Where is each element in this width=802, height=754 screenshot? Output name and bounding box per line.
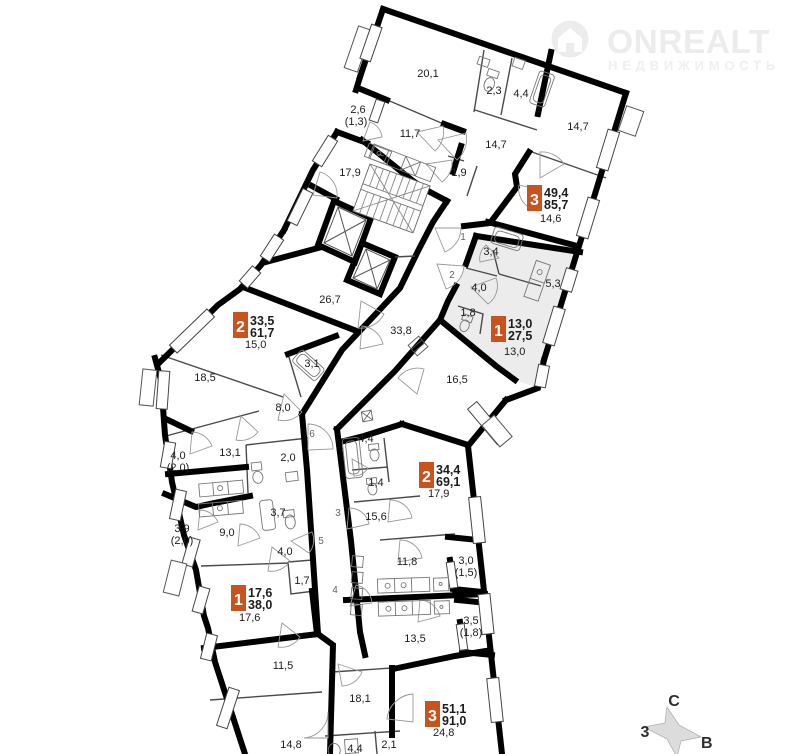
svg-text:4,0: 4,0 [471,282,486,294]
svg-text:13,0: 13,0 [504,346,525,358]
svg-text:3: 3 [335,508,341,519]
svg-text:3: 3 [428,708,437,725]
svg-text:11,5: 11,5 [273,660,294,672]
svg-text:4,4: 4,4 [513,88,528,100]
svg-text:2: 2 [236,319,245,336]
svg-text:(1,8): (1,8) [460,627,483,639]
svg-text:16,5: 16,5 [446,374,467,386]
svg-text:(1,3): (1,3) [345,116,368,128]
svg-text:14,8: 14,8 [280,739,301,751]
svg-text:НЕДВИЖИМОСТЬ: НЕДВИЖИМОСТЬ [608,58,780,73]
svg-text:17,9: 17,9 [428,488,449,500]
svg-text:ONREALT: ONREALT [607,24,770,61]
svg-text:26,7: 26,7 [319,294,340,306]
svg-text:17,6: 17,6 [239,612,260,624]
svg-text:4: 4 [332,585,338,596]
svg-text:4,4: 4,4 [358,433,373,445]
svg-text:33,8: 33,8 [390,325,411,337]
svg-text:2,0: 2,0 [280,452,295,464]
svg-text:27,5: 27,5 [508,329,532,343]
svg-text:1,9: 1,9 [451,167,466,179]
svg-text:1,8: 1,8 [460,307,475,319]
svg-text:2: 2 [422,469,431,486]
svg-text:2: 2 [449,270,455,281]
svg-text:4,4: 4,4 [347,743,362,754]
svg-text:69,1: 69,1 [436,475,460,489]
svg-text:91,0: 91,0 [442,714,466,728]
svg-text:5: 5 [318,536,324,547]
svg-text:61,7: 61,7 [250,326,274,340]
svg-text:14,6: 14,6 [540,213,561,225]
svg-text:С: С [668,693,680,710]
svg-text:(1,5): (1,5) [455,567,478,579]
svg-text:1,4: 1,4 [368,477,383,489]
svg-text:2,1: 2,1 [381,739,396,751]
svg-text:15,6: 15,6 [365,511,386,523]
svg-text:3,5: 3,5 [463,615,478,627]
svg-text:6: 6 [309,429,315,440]
svg-text:18,1: 18,1 [349,693,370,705]
svg-text:1: 1 [234,592,243,609]
svg-text:1,7: 1,7 [294,575,309,587]
svg-text:4,0: 4,0 [277,546,292,558]
svg-text:В: В [701,735,713,752]
svg-text:13,1: 13,1 [219,447,240,459]
svg-text:14,7: 14,7 [567,121,588,133]
svg-text:85,7: 85,7 [544,198,568,212]
svg-text:3: 3 [530,192,539,209]
svg-text:3,7: 3,7 [270,507,285,519]
svg-text:15,0: 15,0 [245,339,266,351]
svg-text:3,1: 3,1 [304,358,319,370]
svg-text:20,1: 20,1 [417,68,438,80]
svg-text:9,0: 9,0 [219,527,234,539]
svg-text:2,6: 2,6 [350,104,365,116]
svg-text:17,9: 17,9 [339,167,360,179]
svg-text:(2,0): (2,0) [167,462,190,474]
svg-text:3,4: 3,4 [483,246,498,258]
svg-text:11,7: 11,7 [400,128,421,140]
svg-text:2,3: 2,3 [486,85,501,97]
svg-text:11,8: 11,8 [397,556,418,568]
svg-text:4,0: 4,0 [170,450,185,462]
svg-text:24,8: 24,8 [433,727,454,739]
svg-text:38,0: 38,0 [248,598,272,612]
svg-text:(2,0): (2,0) [171,535,194,547]
svg-text:8,0: 8,0 [275,402,290,414]
svg-text:1: 1 [494,323,503,340]
svg-text:3,0: 3,0 [458,555,473,567]
svg-text:18,5: 18,5 [194,372,215,384]
svg-text:5,3: 5,3 [545,278,560,290]
svg-text:3,9: 3,9 [174,523,189,535]
svg-text:14,7: 14,7 [485,139,506,151]
svg-text:3: 3 [641,724,650,741]
svg-text:13,5: 13,5 [404,633,425,645]
svg-text:1: 1 [460,232,466,243]
